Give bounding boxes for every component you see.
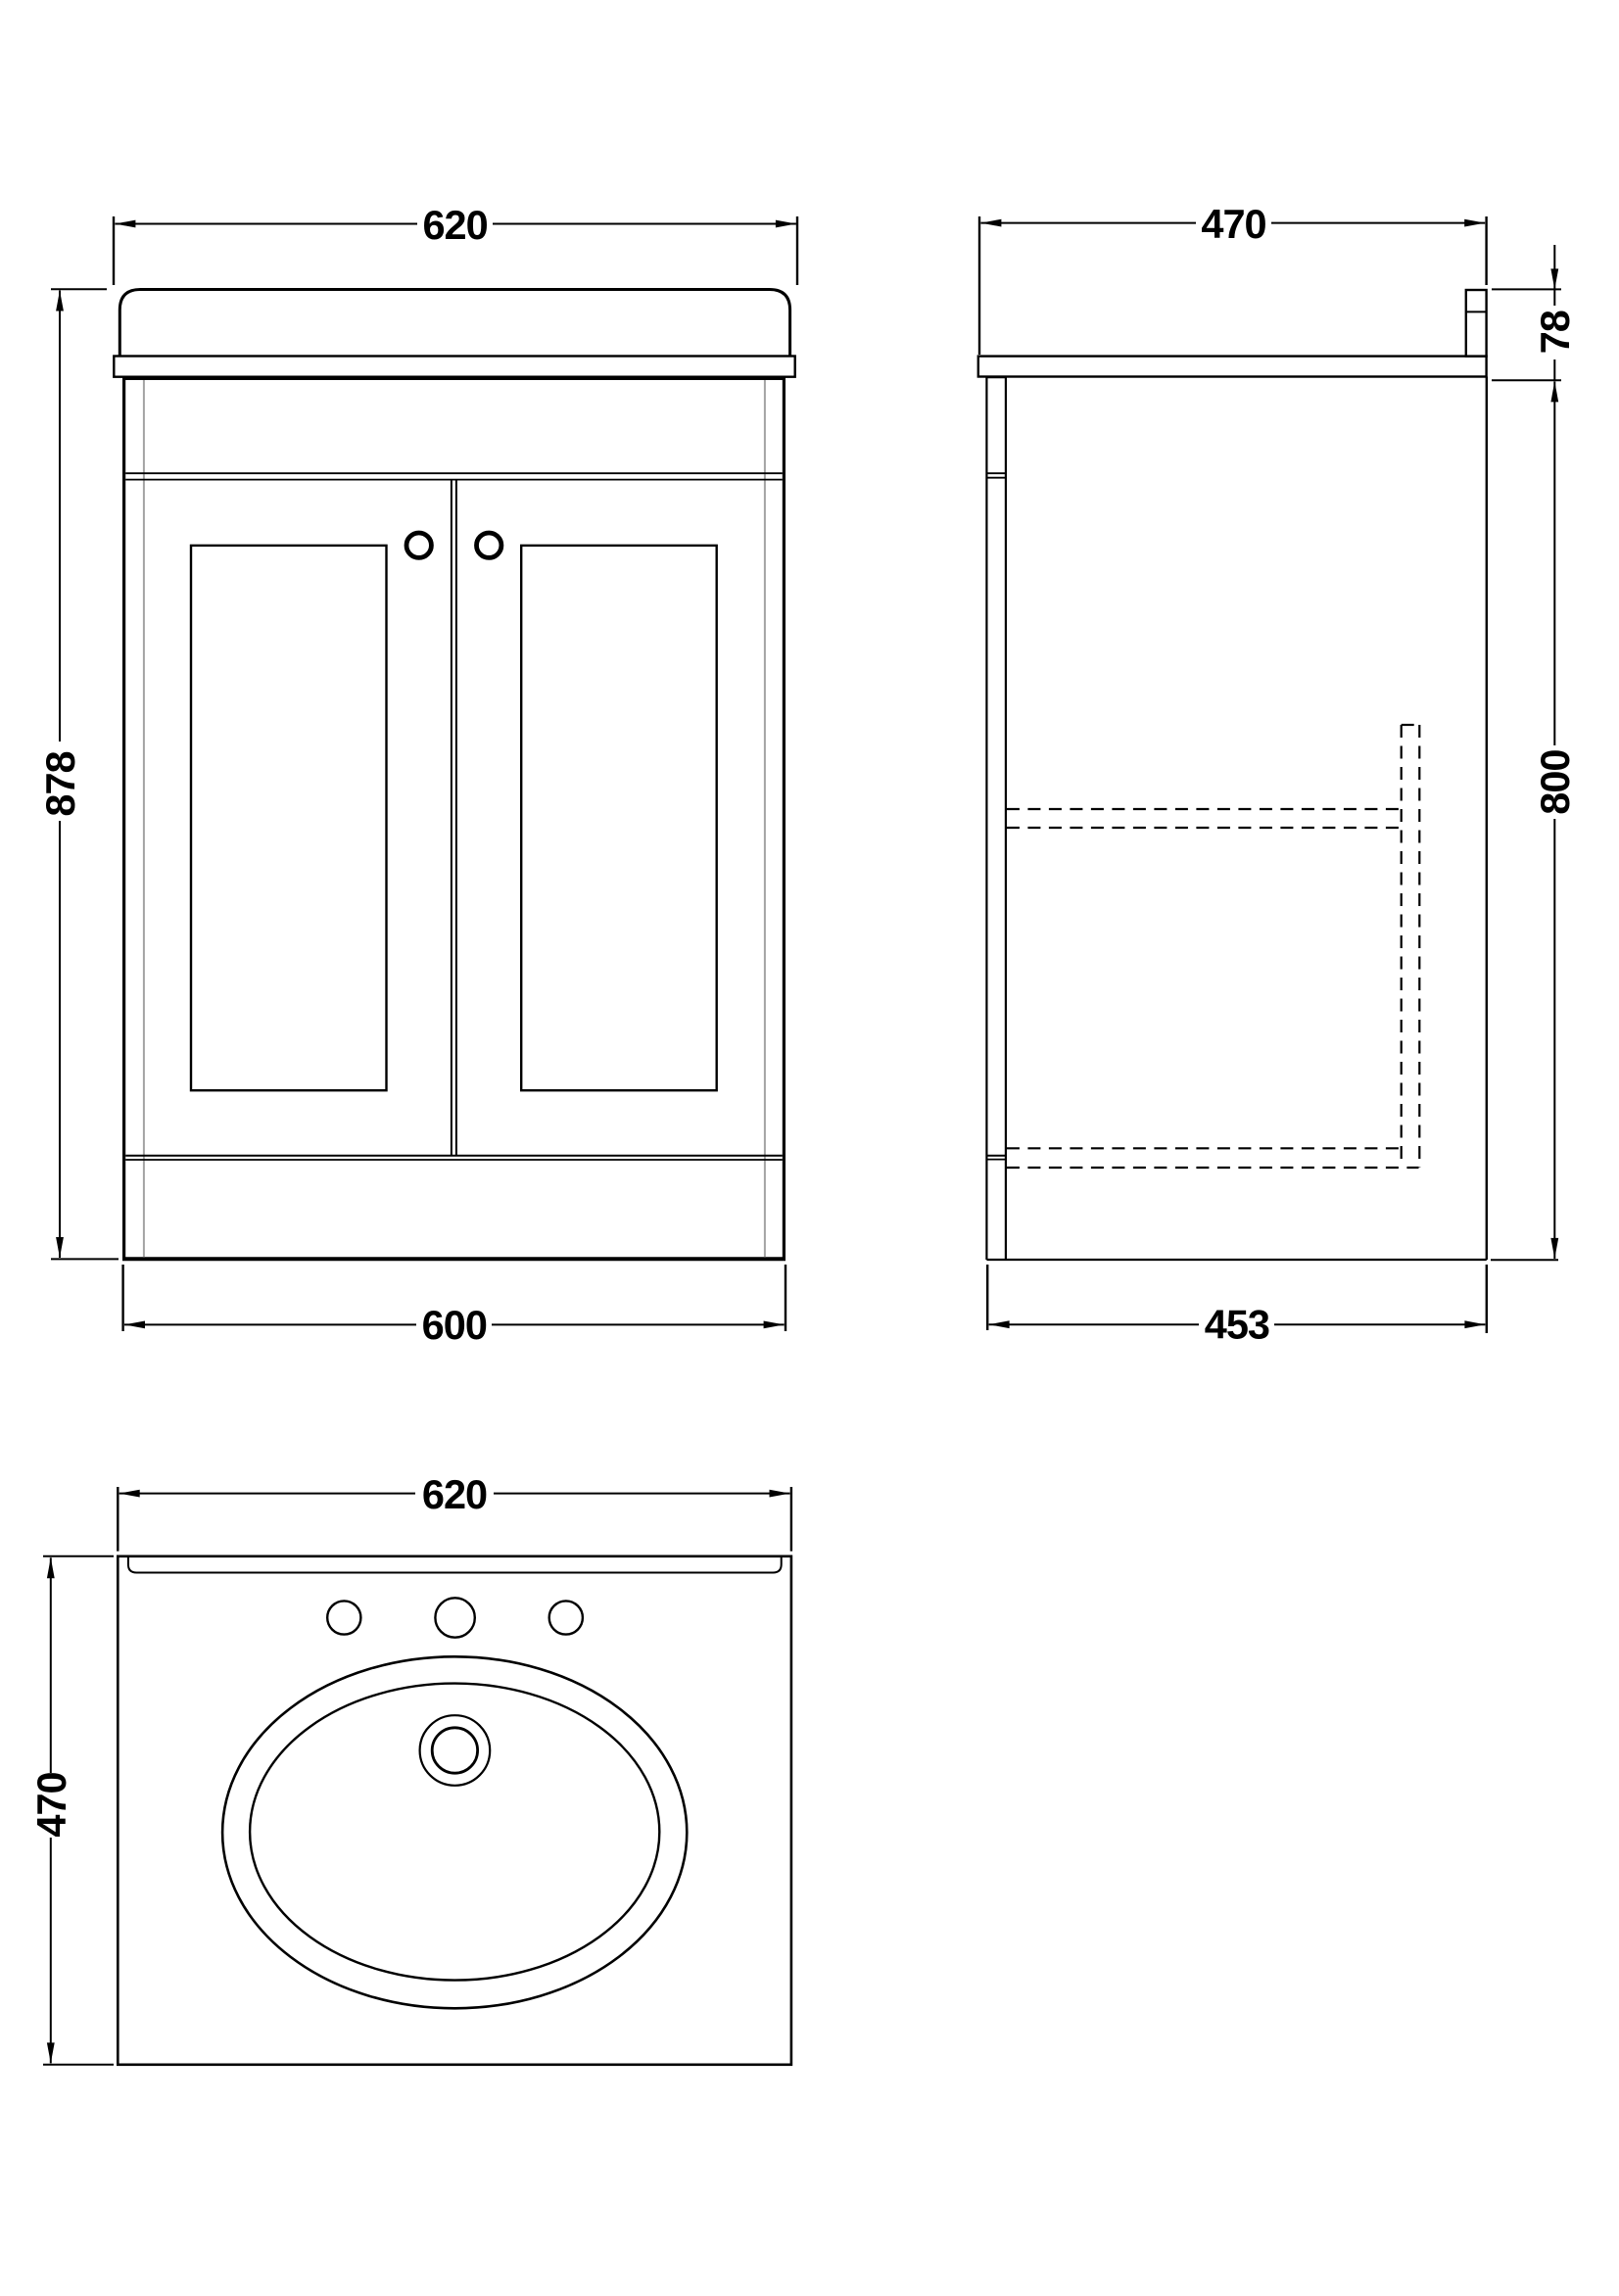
svg-text:470: 470: [28, 1772, 74, 1837]
svg-text:620: 620: [422, 202, 487, 248]
svg-text:453: 453: [1205, 1302, 1269, 1348]
svg-text:470: 470: [1201, 201, 1265, 247]
svg-text:800: 800: [1532, 749, 1578, 814]
svg-text:78: 78: [1532, 311, 1578, 354]
svg-text:620: 620: [422, 1471, 487, 1517]
svg-text:878: 878: [37, 751, 83, 816]
svg-text:600: 600: [422, 1302, 487, 1348]
